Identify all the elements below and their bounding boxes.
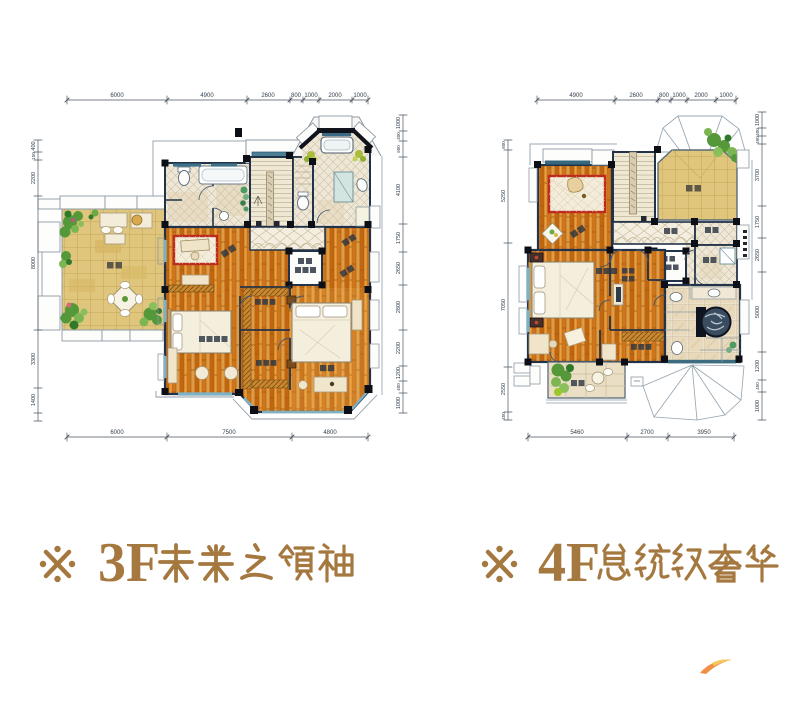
svg-text:2200: 2200 — [396, 342, 402, 354]
svg-text:600: 600 — [501, 141, 506, 149]
svg-text:600: 600 — [396, 145, 401, 153]
svg-text:4900: 4900 — [569, 93, 583, 99]
svg-text:400: 400 — [31, 141, 37, 150]
svg-text:3300: 3300 — [31, 353, 37, 365]
svg-text:4800: 4800 — [323, 430, 337, 436]
svg-text:1000: 1000 — [755, 400, 761, 412]
svg-text:8000: 8000 — [31, 257, 37, 269]
svg-text:7050: 7050 — [501, 299, 507, 311]
svg-text:2600: 2600 — [261, 93, 275, 99]
svg-text:1000: 1000 — [672, 93, 686, 99]
svg-text:2800: 2800 — [396, 301, 402, 313]
svg-text:1200: 1200 — [396, 367, 402, 379]
svg-text:400: 400 — [755, 128, 760, 136]
svg-text:6000: 6000 — [110, 93, 124, 99]
svg-text:4900: 4900 — [200, 93, 214, 99]
svg-text:5000: 5000 — [755, 306, 761, 318]
svg-text:2650: 2650 — [755, 249, 761, 261]
svg-text:2600: 2600 — [629, 93, 643, 99]
svg-text:4F: 4F — [538, 532, 600, 594]
svg-text:2700: 2700 — [640, 430, 654, 436]
svg-text:400: 400 — [396, 132, 401, 140]
svg-text:150: 150 — [31, 152, 36, 160]
svg-text:1000: 1000 — [353, 93, 367, 99]
svg-text:3950: 3950 — [697, 430, 711, 436]
svg-text:5460: 5460 — [570, 430, 584, 436]
svg-text:5250: 5250 — [501, 190, 507, 202]
svg-text:6000: 6000 — [110, 430, 124, 436]
svg-text:1000: 1000 — [719, 93, 733, 99]
svg-text:2550: 2550 — [501, 383, 507, 395]
svg-text:400: 400 — [396, 383, 401, 391]
svg-text:1000: 1000 — [396, 117, 402, 129]
svg-text:2000: 2000 — [694, 93, 708, 99]
svg-text:450: 450 — [755, 382, 760, 390]
svg-text:1200: 1200 — [755, 360, 761, 372]
svg-text:2000: 2000 — [328, 93, 342, 99]
svg-text:490: 490 — [755, 136, 760, 144]
svg-text:800: 800 — [291, 93, 302, 99]
svg-text:7500: 7500 — [222, 430, 236, 436]
svg-text:3F: 3F — [98, 532, 160, 594]
svg-text:1000: 1000 — [304, 93, 318, 99]
svg-text:3700: 3700 — [755, 169, 761, 181]
svg-text:1750: 1750 — [396, 232, 402, 244]
svg-text:1000: 1000 — [396, 397, 402, 409]
svg-text:2650: 2650 — [396, 262, 402, 274]
svg-text:1400: 1400 — [31, 394, 37, 406]
svg-text:450: 450 — [501, 412, 506, 420]
svg-text:800: 800 — [659, 93, 670, 99]
svg-text:2200: 2200 — [31, 172, 37, 184]
svg-text:1000: 1000 — [755, 114, 761, 126]
svg-text:1750: 1750 — [755, 216, 761, 228]
svg-text:4100: 4100 — [396, 184, 402, 196]
